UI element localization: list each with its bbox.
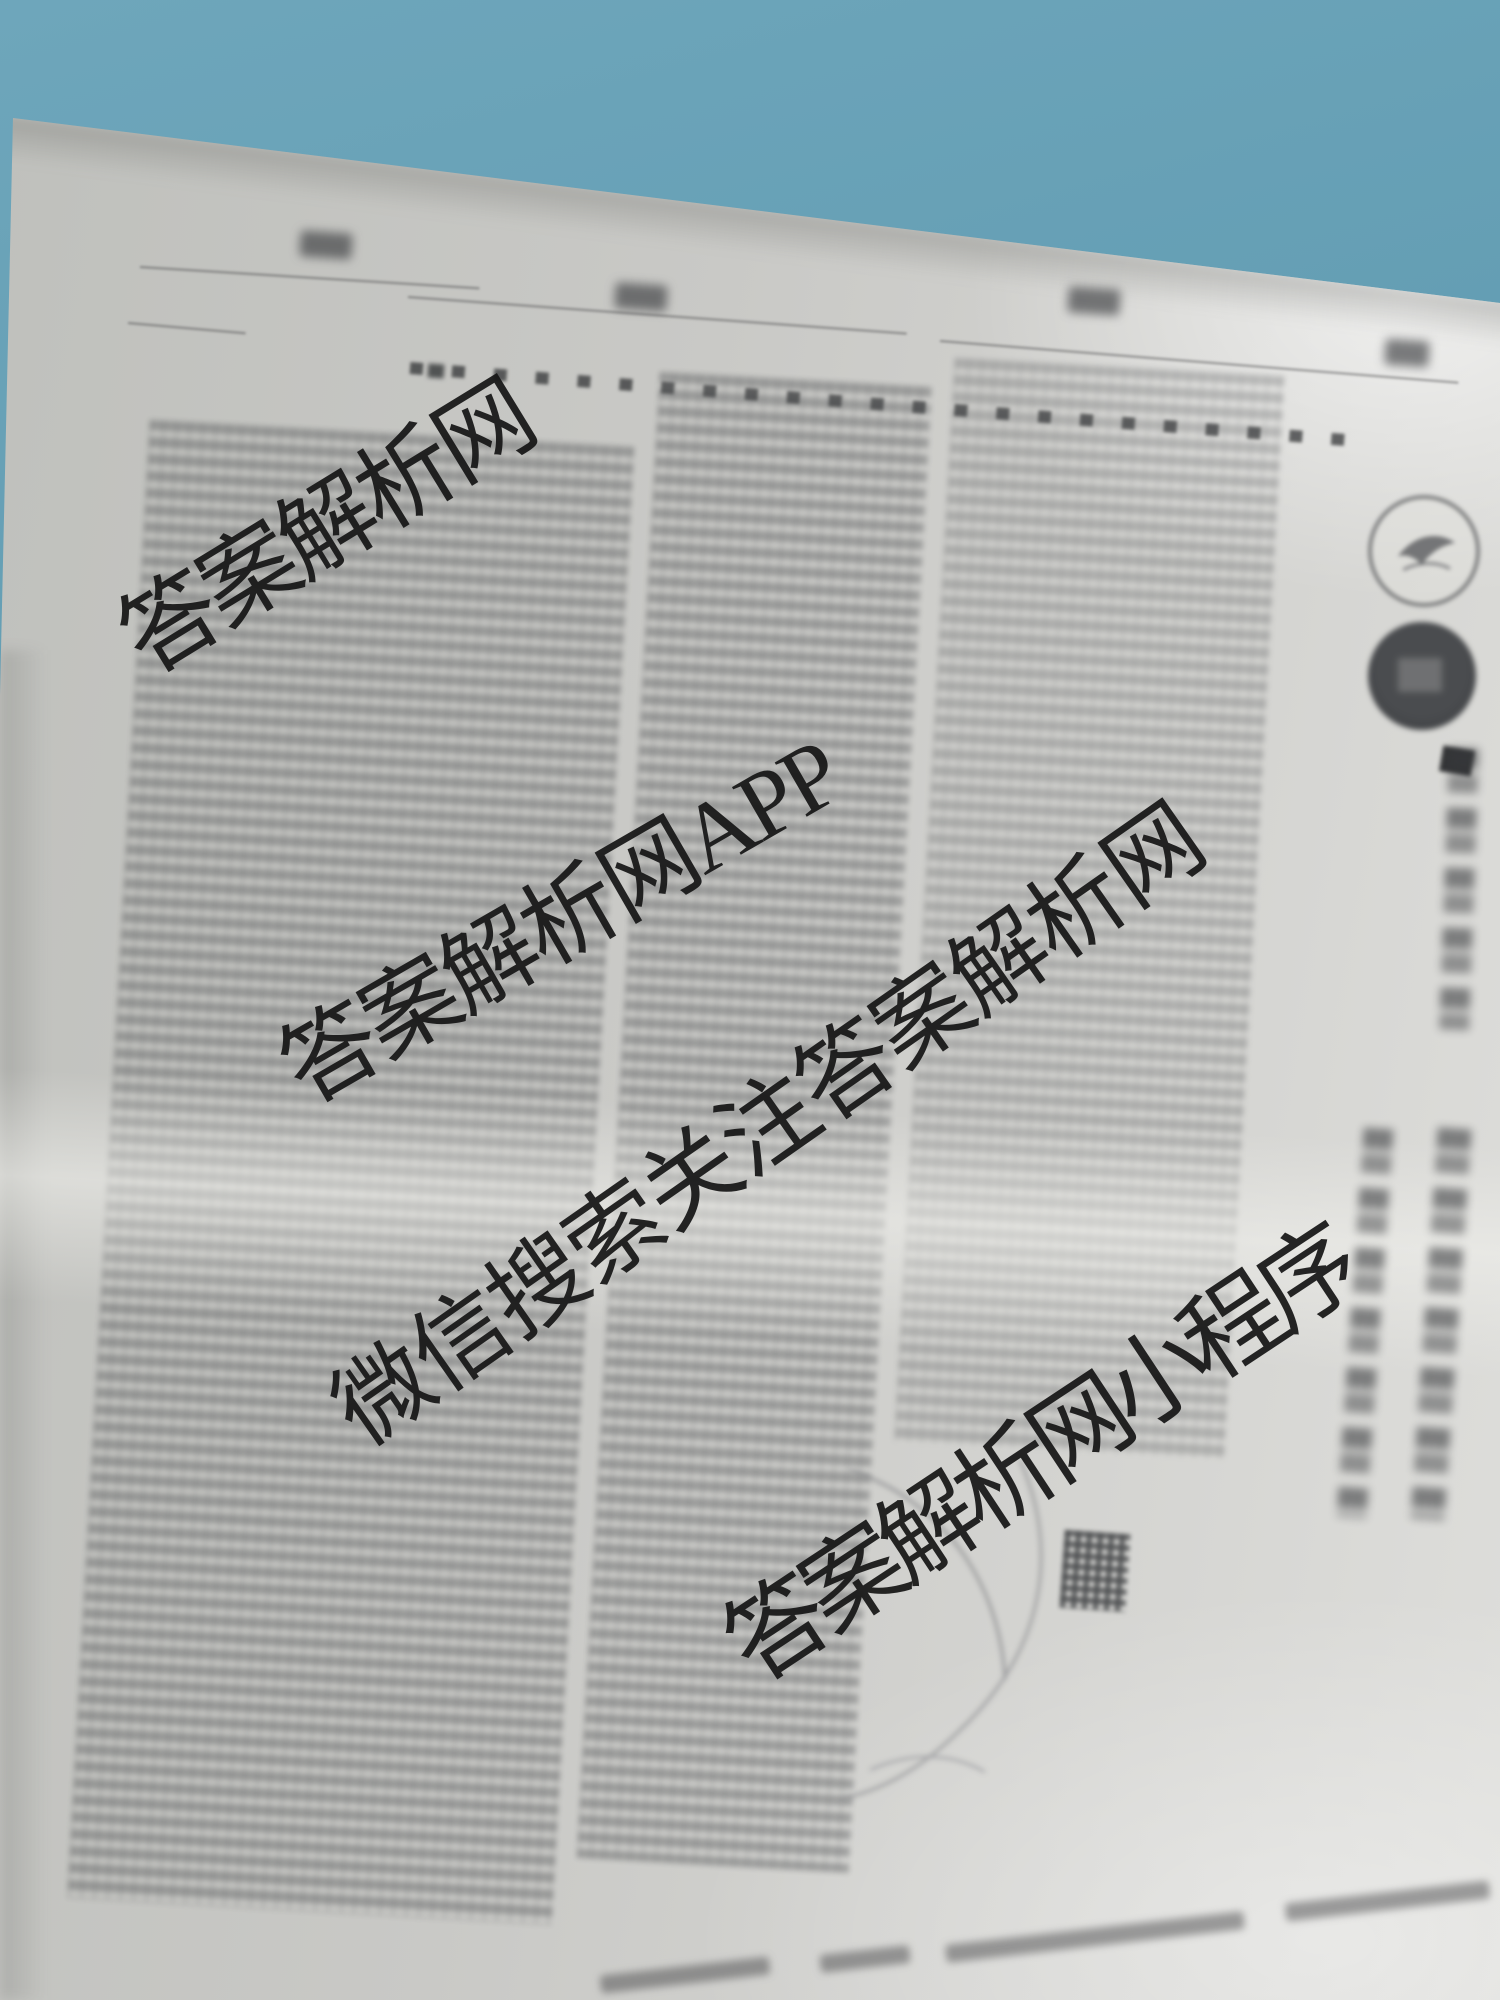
ink-stamp-icon	[1368, 622, 1476, 730]
header-field-label-blur	[299, 230, 353, 260]
header-underline	[128, 322, 246, 334]
header-field-label-blur	[1384, 338, 1430, 367]
header-field-label-blur	[614, 282, 668, 312]
vertical-title-text-blur	[1439, 748, 1479, 1031]
answer-grid-blob-blur	[1059, 1530, 1130, 1612]
footer-text-blur	[819, 1945, 910, 1973]
paper-sheet	[0, 0, 1500, 2000]
paper-top-edge-shade	[0, 112, 1500, 356]
school-badge-icon	[1368, 495, 1480, 607]
paper-left-edge-shade	[0, 650, 46, 2000]
footer-text-blur	[1285, 1880, 1491, 1921]
photo-of-exam-paper: 答案解析网 答案解析网APP 微信搜索关注答案解析网 答案解析网小程序	[0, 0, 1500, 2000]
footer-text-blur	[945, 1911, 1245, 1963]
bird-emblem-icon	[1372, 499, 1476, 603]
footer-text-blur	[600, 1956, 771, 1993]
header-field-label-blur	[1067, 286, 1121, 316]
header-underline	[140, 266, 479, 289]
